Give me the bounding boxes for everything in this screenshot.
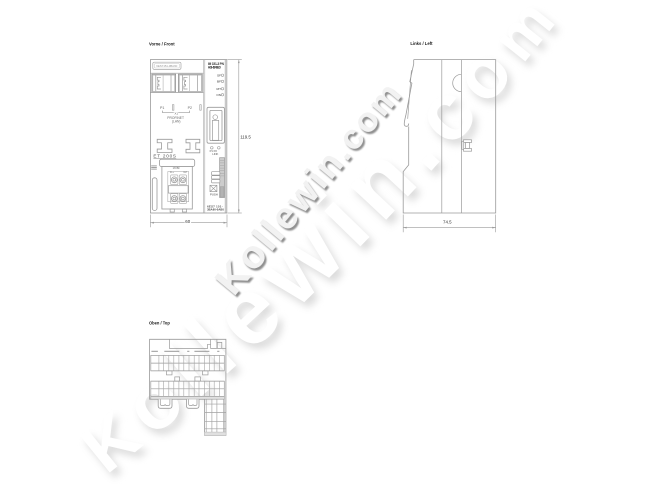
svg-text:119.5: 119.5 [240,134,251,139]
svg-text:6ES7151-3BA60: 6ES7151-3BA60 [156,64,177,68]
svg-text:Oben / Top: Oben / Top [149,320,170,326]
svg-text:SF: SF [217,73,221,77]
svg-text:P1: P1 [160,106,164,110]
svg-text:MT: MT [217,87,222,91]
svg-text:3BA60-0AB0: 3BA60-0AB0 [207,207,224,211]
svg-text:1L+: 1L+ [170,171,175,174]
svg-text:Links / Left: Links / Left [410,41,432,47]
svg-text:P2: P2 [188,106,192,110]
svg-text:ET 200S: ET 200S [153,154,176,159]
svg-text:HIGH SPEED: HIGH SPEED [208,66,222,70]
svg-text:X1: X1 [174,111,178,115]
svg-text:60: 60 [185,219,190,224]
svg-text:1M: 1M [183,171,186,174]
svg-text:LINK: LINK [212,152,218,156]
svg-text:BF: BF [217,80,221,84]
svg-text:(LAN): (LAN) [172,120,181,124]
svg-text:MOBF: MOBF [173,167,181,170]
svg-text:PUSH: PUSH [210,192,218,196]
svg-text:ON: ON [216,93,221,97]
svg-text:74.5: 74.5 [443,219,452,224]
svg-text:Vorne / Front: Vorne / Front [149,41,175,47]
